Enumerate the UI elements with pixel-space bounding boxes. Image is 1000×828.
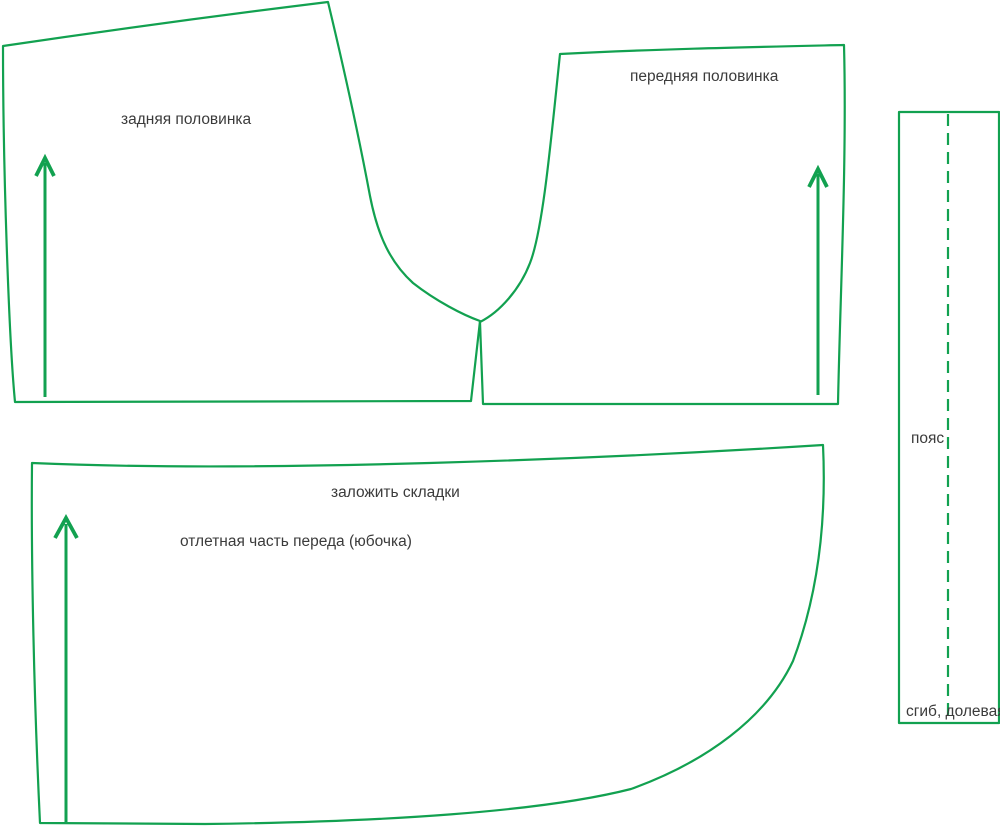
piece-skirt: заложить складки отлетная часть переда (… bbox=[32, 445, 824, 824]
back-half-outline bbox=[3, 2, 480, 402]
piece-front-half: передняя половинка bbox=[480, 45, 845, 404]
piece-back-half: задняя половинка bbox=[3, 2, 480, 402]
back-half-label: задняя половинка bbox=[121, 111, 252, 128]
waistband-label: пояс bbox=[911, 430, 944, 447]
front-half-label: передняя половинка bbox=[630, 68, 779, 85]
skirt-grainline bbox=[55, 518, 77, 822]
back-half-grainline bbox=[36, 158, 54, 397]
waistband-note: сгиб, долевая bbox=[906, 703, 1000, 720]
skirt-note: заложить складки bbox=[331, 484, 460, 501]
pattern-diagram: задняя половинка передняя половинка зало… bbox=[0, 0, 1000, 828]
skirt-label: отлетная часть переда (юбочка) bbox=[180, 533, 412, 550]
front-half-grainline bbox=[809, 169, 827, 395]
skirt-outline bbox=[32, 445, 824, 824]
front-half-outline bbox=[480, 45, 845, 404]
piece-waistband: пояс сгиб, долевая bbox=[899, 112, 1000, 723]
sewing-pattern-sheet: задняя половинка передняя половинка зало… bbox=[0, 0, 1000, 828]
